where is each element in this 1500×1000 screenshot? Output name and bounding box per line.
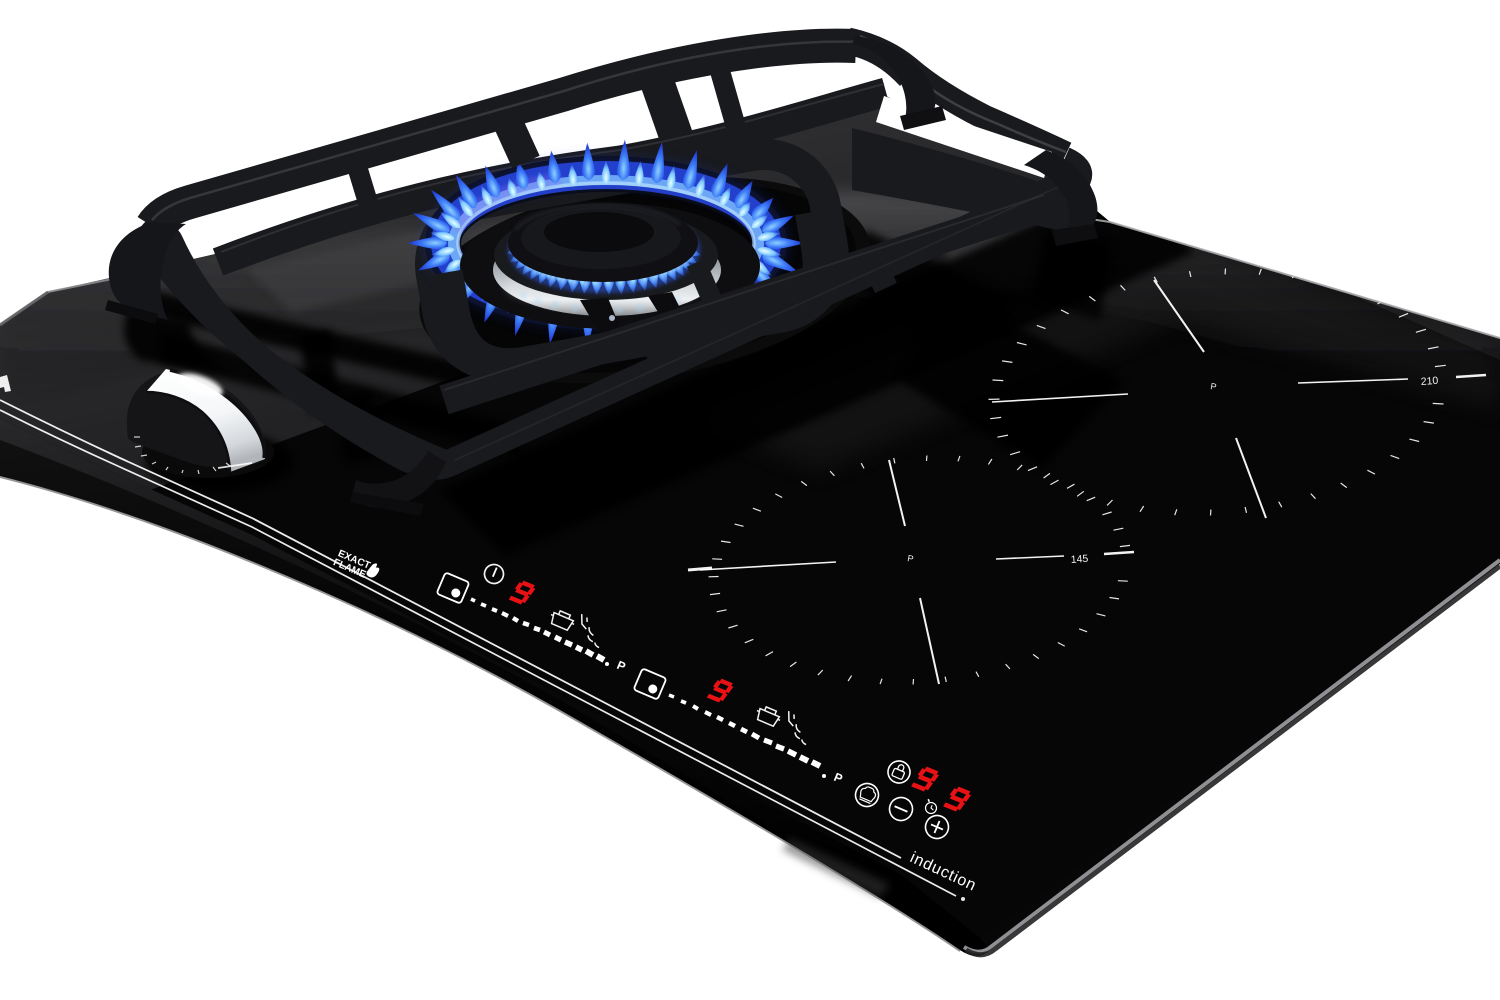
svg-text:210: 210	[1420, 375, 1438, 388]
svg-text:145: 145	[1070, 553, 1088, 566]
